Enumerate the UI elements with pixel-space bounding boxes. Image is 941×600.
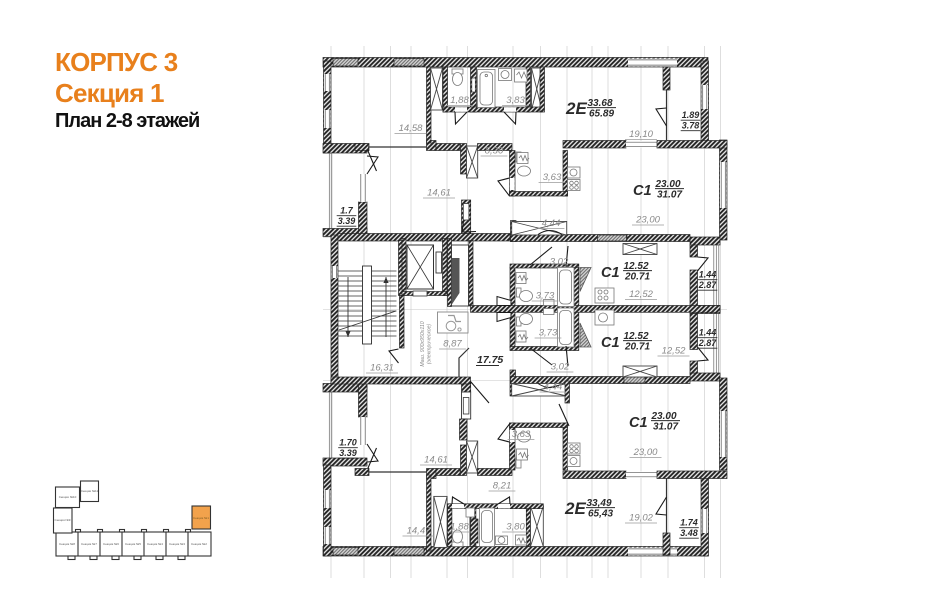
svg-text:20.71: 20.71 xyxy=(624,272,650,283)
svg-text:17.75: 17.75 xyxy=(477,354,503,366)
svg-text:1.44: 1.44 xyxy=(699,328,717,338)
svg-text:(электрическое): (электрическое) xyxy=(427,323,433,364)
svg-text:1.89: 1.89 xyxy=(682,110,700,120)
svg-text:Секция №9: Секция №9 xyxy=(55,518,71,522)
svg-text:С1: С1 xyxy=(601,335,620,351)
svg-text:3,80: 3,80 xyxy=(506,522,525,533)
svg-text:Секция №11: Секция №11 xyxy=(81,489,99,493)
svg-text:3,63: 3,63 xyxy=(512,429,531,440)
svg-text:65.89: 65.89 xyxy=(589,109,614,120)
svg-text:Секция №10: Секция №10 xyxy=(59,495,77,499)
svg-text:4,44: 4,44 xyxy=(542,218,561,229)
svg-text:2Е: 2Е xyxy=(564,499,586,518)
svg-text:1,88: 1,88 xyxy=(450,522,469,533)
svg-text:3.48: 3.48 xyxy=(680,528,698,538)
svg-text:3.39: 3.39 xyxy=(338,216,356,226)
svg-text:Маш. 900х950х110: Маш. 900х950х110 xyxy=(420,321,426,366)
svg-text:2Е: 2Е xyxy=(565,99,587,118)
svg-text:8,87: 8,87 xyxy=(443,339,462,350)
svg-text:Секция №2: Секция №2 xyxy=(191,542,207,546)
svg-text:14,61: 14,61 xyxy=(424,455,448,466)
svg-text:3,63: 3,63 xyxy=(543,172,562,183)
svg-text:14,47: 14,47 xyxy=(407,526,431,537)
svg-text:1.70: 1.70 xyxy=(339,438,357,448)
svg-text:31.07: 31.07 xyxy=(657,190,682,201)
svg-text:20.71: 20.71 xyxy=(624,342,650,353)
svg-text:1.7: 1.7 xyxy=(340,206,354,216)
svg-text:1,88: 1,88 xyxy=(450,95,469,106)
svg-text:Секция №7: Секция №7 xyxy=(81,542,97,546)
svg-text:Секция №5: Секция №5 xyxy=(125,542,141,546)
svg-text:65,43: 65,43 xyxy=(588,509,613,520)
svg-text:Секция №6: Секция №6 xyxy=(103,542,119,546)
svg-text:8,30: 8,30 xyxy=(485,146,504,157)
svg-text:14,58: 14,58 xyxy=(399,123,423,134)
svg-text:3,83: 3,83 xyxy=(506,95,525,106)
svg-text:19,02: 19,02 xyxy=(629,513,653,524)
svg-text:Секция №8: Секция №8 xyxy=(59,542,75,546)
svg-text:С1: С1 xyxy=(629,415,648,431)
svg-text:14,61: 14,61 xyxy=(427,188,451,199)
svg-text:С1: С1 xyxy=(601,265,620,281)
svg-text:23,00: 23,00 xyxy=(633,447,658,458)
svg-text:2.87: 2.87 xyxy=(698,338,718,348)
svg-text:1.44: 1.44 xyxy=(699,270,717,280)
svg-text:3.39: 3.39 xyxy=(339,448,357,458)
svg-text:12,52: 12,52 xyxy=(662,346,686,357)
svg-text:2.87: 2.87 xyxy=(698,280,718,290)
svg-text:3,73: 3,73 xyxy=(536,291,555,302)
svg-text:3.78: 3.78 xyxy=(682,121,700,131)
svg-text:4,44: 4,44 xyxy=(544,382,563,393)
svg-text:8,21: 8,21 xyxy=(493,481,512,492)
svg-text:3,02: 3,02 xyxy=(551,362,570,373)
svg-text:12,52: 12,52 xyxy=(629,289,653,300)
svg-text:3,02: 3,02 xyxy=(550,257,569,268)
svg-text:1.74: 1.74 xyxy=(680,518,698,528)
svg-text:19,10: 19,10 xyxy=(629,129,653,140)
svg-text:16,31: 16,31 xyxy=(370,363,394,374)
svg-text:31.07: 31.07 xyxy=(653,422,678,433)
svg-text:3,73: 3,73 xyxy=(539,328,558,339)
svg-text:Секция №1: Секция №1 xyxy=(193,516,209,520)
svg-text:Секция №3: Секция №3 xyxy=(169,542,185,546)
svg-text:23,00: 23,00 xyxy=(635,215,660,226)
svg-text:Секция №4: Секция №4 xyxy=(147,542,163,546)
svg-text:С1: С1 xyxy=(633,183,652,199)
